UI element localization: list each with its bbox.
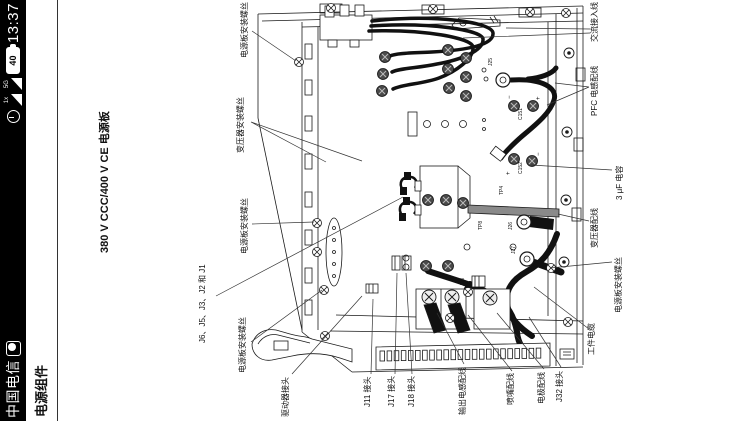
bottom-connector-strip (376, 343, 574, 370)
callout-label: PFC 电感配线 (590, 66, 600, 116)
callout-label: J11 接头 (363, 376, 373, 407)
ref-c151: C151 (518, 108, 524, 120)
callout-label: 输出电感配线 (458, 367, 468, 415)
callout-label: 电源板安装螺丝 (240, 198, 250, 254)
callout-label: 电源板安装螺丝 (614, 257, 624, 313)
phone-screenshot: 中国电信 1x 5G 40 13:37 电源组件 380 V CCC/400 V… (0, 0, 750, 421)
polarity-minus: − (507, 95, 513, 99)
ref-tp4: TP4 (499, 186, 505, 195)
callout-label: 电源板安装螺丝 (240, 2, 250, 58)
figure-illustration: J25 C151 C152 J26 J27 J28 TP8 TP4 − + + … (0, 0, 750, 421)
callout-label: 喷嘴配线 (506, 373, 516, 405)
ref-j25: J25 (488, 58, 494, 66)
callout-label: 变压器安装螺丝 (236, 97, 246, 153)
callout-label: 工件电缆 (587, 323, 597, 355)
j-connector-jumpers (399, 172, 421, 221)
callout-label: J32 接头 (555, 371, 565, 402)
component-refs: J25 C151 C152 J26 J27 J28 TP8 TP4 − + + … (460, 58, 542, 286)
vent-slots (305, 44, 312, 315)
polarity-plus: + (506, 171, 512, 175)
ref-j26: J26 (508, 222, 514, 230)
j26-cable (529, 216, 554, 230)
callout-label: 变压器配线 (590, 208, 600, 248)
callout-label: J18 接头 (407, 376, 417, 407)
ref-tp8: TP8 (478, 221, 484, 230)
callout-label: 驱动器接头 (281, 377, 291, 417)
polarity-minus: − (536, 152, 542, 156)
ref-j28: J28 (460, 278, 466, 286)
ref-j27: J27 (511, 246, 517, 254)
chassis-drawing: J25 C151 C152 J26 J27 J28 TP8 TP4 − + + … (216, 4, 612, 375)
document-page: 中国电信 1x 5G 40 13:37 电源组件 380 V CCC/400 V… (0, 0, 750, 421)
polarity-plus: + (536, 96, 542, 100)
callout-label: J17 接头 (387, 376, 397, 407)
ref-c152: C152 (518, 162, 524, 174)
callout-label: 电源板安装螺丝 (238, 317, 248, 373)
j11-connector (366, 284, 378, 293)
callout-label: 3 μF 电容 (615, 166, 625, 200)
foot-bracket (252, 330, 352, 362)
callout-label: J6、J5、J3、J2 和 J1 (198, 264, 208, 343)
callout-label: 交流接入线 (590, 2, 600, 42)
callout-label: 电极配线 (537, 372, 547, 404)
